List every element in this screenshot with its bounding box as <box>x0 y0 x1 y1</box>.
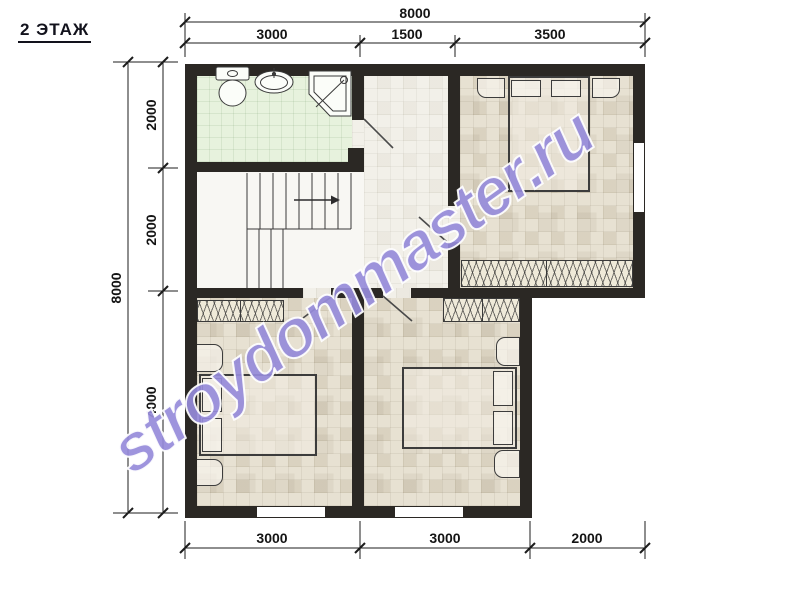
floor-plan: 2 ЭТАЖ <box>0 0 800 600</box>
dim-left-total: 8000 <box>108 272 124 303</box>
dim-bottom-seg-3: 2000 <box>571 530 602 546</box>
dim-top-seg-3: 3500 <box>534 26 565 42</box>
toilet-icon <box>216 67 249 106</box>
dim-top-total: 8000 <box>399 5 430 21</box>
dim-top-seg-1: 3000 <box>256 26 287 42</box>
dim-bottom-seg-1: 3000 <box>256 530 287 546</box>
dim-left-seg-1: 2000 <box>143 99 159 130</box>
door-leaf-bathroom <box>364 119 393 148</box>
dim-bottom-seg-2: 3000 <box>429 530 460 546</box>
shower-icon <box>309 71 351 116</box>
stairs-direction-arrow <box>294 196 340 205</box>
dim-left-seg-2: 2000 <box>143 214 159 245</box>
dim-top-seg-2: 1500 <box>391 26 422 42</box>
sink-icon <box>255 68 293 93</box>
